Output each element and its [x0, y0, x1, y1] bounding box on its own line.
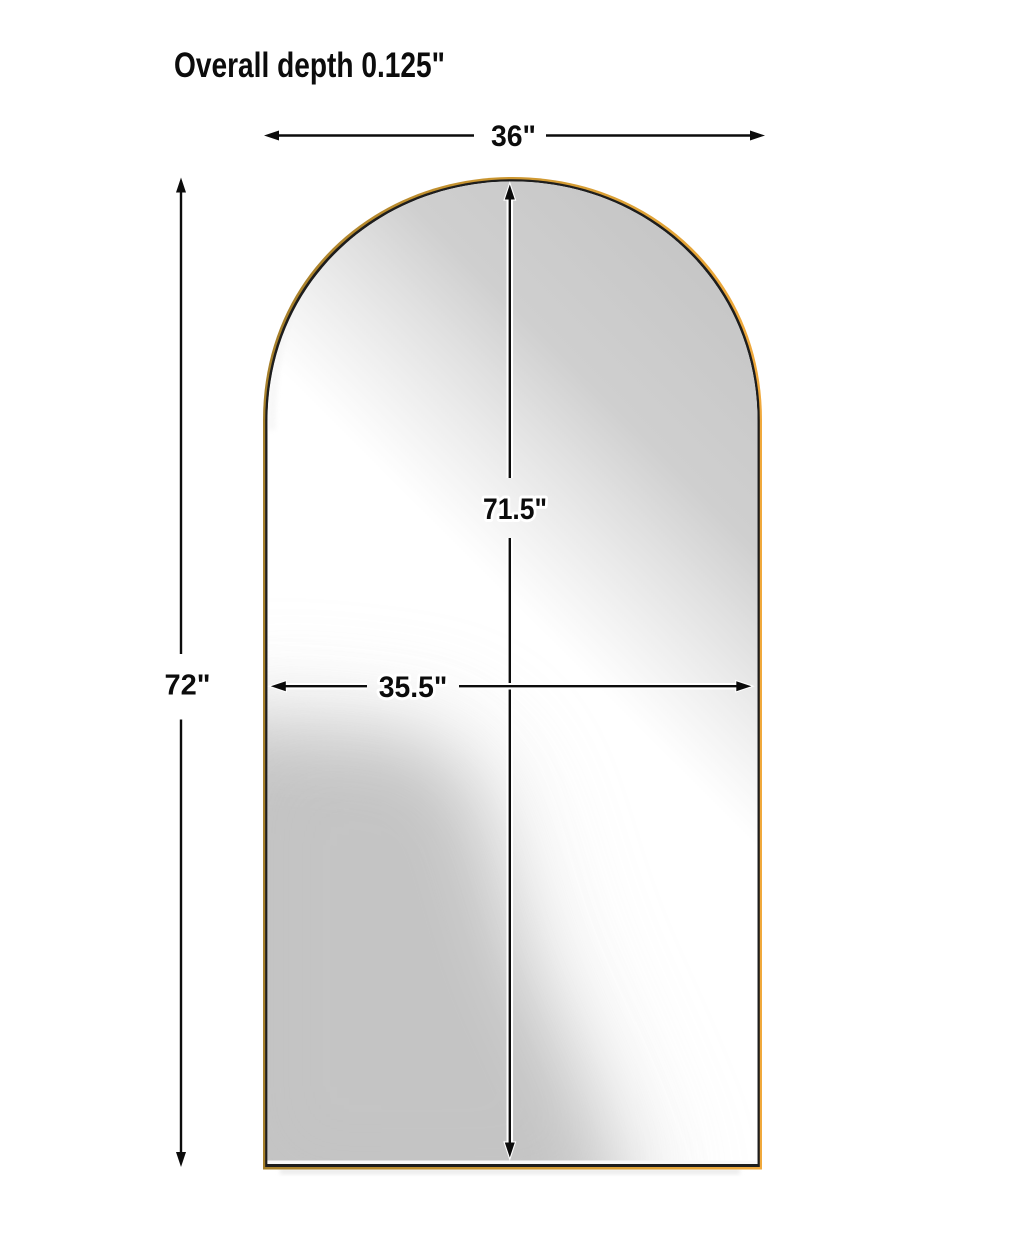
- svg-text:Overall depth 0.125": Overall depth 0.125": [174, 45, 445, 85]
- svg-text:36": 36": [491, 120, 536, 153]
- svg-text:71.5": 71.5": [483, 493, 547, 526]
- svg-text:35.5": 35.5": [379, 671, 448, 704]
- svg-text:72": 72": [165, 670, 211, 702]
